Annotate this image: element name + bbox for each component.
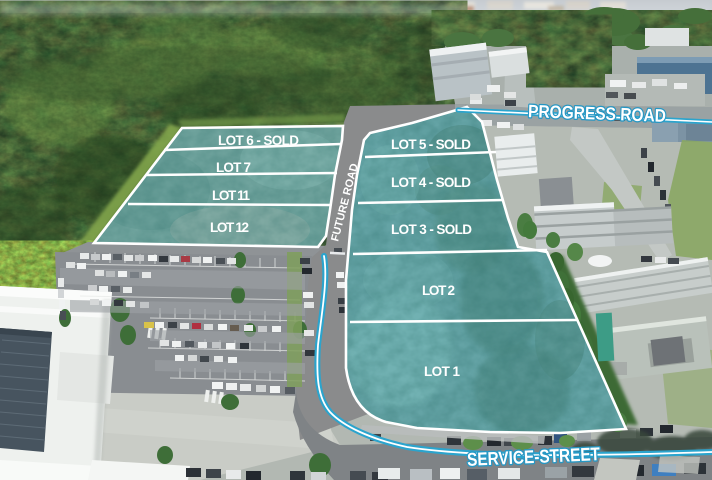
svg-text:LOT 7: LOT 7 (216, 160, 251, 175)
svg-text:LOT 6 - SOLD: LOT 6 - SOLD (218, 133, 299, 148)
svg-text:LOT 1: LOT 1 (424, 364, 460, 379)
svg-text:LOT 12: LOT 12 (210, 220, 249, 235)
svg-text:LOT 3 - SOLD: LOT 3 - SOLD (391, 222, 472, 237)
svg-text:LOT 5 - SOLD: LOT 5 - SOLD (391, 137, 471, 152)
svg-text:LOT 11: LOT 11 (212, 188, 250, 203)
svg-text:LOT 2: LOT 2 (422, 283, 455, 298)
svg-text:LOT 4 - SOLD: LOT 4 - SOLD (391, 175, 471, 190)
